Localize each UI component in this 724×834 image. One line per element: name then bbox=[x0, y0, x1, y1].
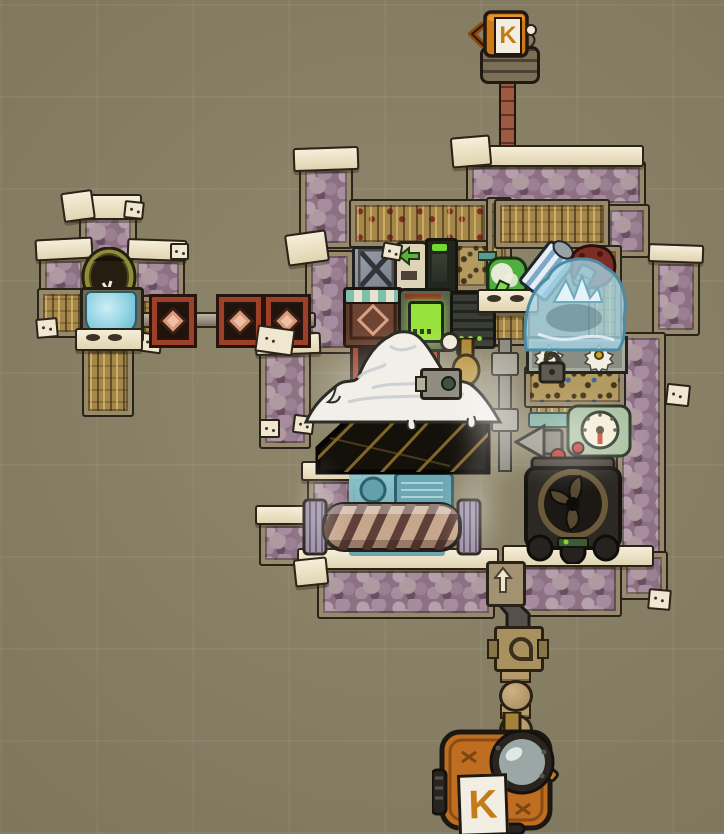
camera-lens-icon bbox=[441, 376, 456, 391]
shutoff-valve[interactable] bbox=[494, 626, 544, 672]
top-vent-logo: K bbox=[499, 22, 516, 50]
vent-segment[interactable] bbox=[486, 561, 526, 607]
tile-cap bbox=[450, 134, 493, 168]
bin-flap bbox=[381, 241, 404, 261]
machine-red-strip bbox=[405, 294, 441, 299]
ration-box-awning bbox=[344, 288, 400, 304]
up-arrow-icon bbox=[489, 564, 517, 598]
rail-box[interactable] bbox=[149, 294, 197, 348]
goo-pile[interactable] bbox=[296, 324, 510, 430]
tile-cap bbox=[293, 556, 330, 587]
bottom-pump-logo: K bbox=[468, 782, 498, 828]
corner-note bbox=[259, 419, 280, 438]
valve-lever[interactable] bbox=[509, 637, 533, 661]
fan-gas-pump[interactable] bbox=[522, 456, 626, 564]
bracket-hole bbox=[487, 295, 501, 302]
tile-cap bbox=[284, 229, 330, 267]
valve-tab bbox=[487, 639, 499, 659]
top-gas-vent[interactable]: K bbox=[468, 8, 538, 66]
basin-ledge-hole bbox=[86, 334, 100, 341]
camera-side-tab bbox=[415, 376, 427, 392]
corner-note bbox=[123, 200, 145, 220]
battery-body-column bbox=[432, 254, 447, 282]
tile-block[interactable] bbox=[82, 345, 134, 417]
basin-ledge-hole bbox=[108, 334, 122, 341]
sieve-drum[interactable] bbox=[302, 494, 482, 558]
insulated-wall[interactable] bbox=[652, 258, 700, 336]
bottom-pump-logo-badge: K bbox=[457, 773, 509, 834]
tile-cap bbox=[648, 243, 705, 264]
valve-tab bbox=[537, 639, 549, 659]
sensor-gauge[interactable] bbox=[566, 402, 634, 460]
smart-battery[interactable] bbox=[425, 238, 458, 294]
corner-note bbox=[35, 317, 59, 339]
top-vent-logo-badge: K bbox=[494, 17, 522, 55]
rail-box-diamond bbox=[160, 308, 187, 335]
game-viewport: K bbox=[0, 0, 724, 834]
bottom-liquid-pump[interactable]: K bbox=[432, 712, 566, 834]
ice-mound[interactable] bbox=[518, 246, 634, 354]
corner-note bbox=[170, 243, 189, 260]
pipe-ball-joint bbox=[499, 680, 533, 712]
battery-charge-bar bbox=[432, 244, 447, 251]
tile-cap bbox=[293, 146, 360, 172]
padlock-icon bbox=[538, 352, 566, 384]
sensor-camera[interactable] bbox=[420, 368, 462, 400]
tile-cap bbox=[468, 145, 644, 167]
corner-note bbox=[665, 383, 691, 407]
tile-cap bbox=[60, 189, 96, 223]
corner-note bbox=[647, 588, 672, 611]
rail-box-diamond bbox=[227, 308, 254, 335]
insulated-wall-bottom[interactable] bbox=[317, 565, 495, 619]
corner-note bbox=[254, 324, 295, 356]
